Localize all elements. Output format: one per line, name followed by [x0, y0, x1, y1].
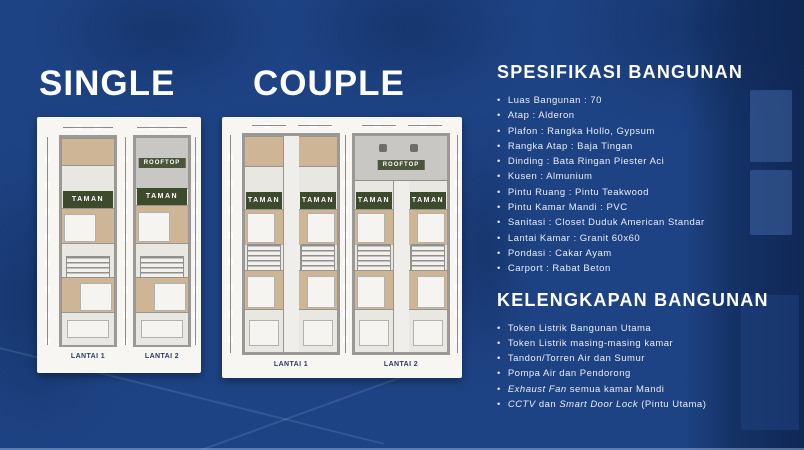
bed	[357, 213, 385, 243]
bed	[141, 320, 183, 338]
room-area	[245, 309, 283, 352]
rooftop-furniture-icon	[379, 144, 387, 152]
dimension-ticks-horizontal	[63, 125, 113, 130]
stairs-area	[357, 244, 391, 272]
stairs-area	[411, 244, 445, 272]
taman-label: TAMAN	[302, 197, 334, 204]
spec-item: Plafon : Rangka Hollo, Gypsum	[497, 124, 799, 139]
taman-label: TAMAN	[146, 193, 178, 200]
floorplan-single-lantai2: ROOFTOP TAMAN	[133, 135, 191, 347]
taman-badge: TAMAN	[137, 188, 187, 205]
taman-badge: TAMAN	[63, 191, 113, 208]
taman-badge: TAMAN	[246, 192, 282, 209]
stairs-area	[66, 256, 110, 279]
rooftop-badge: ROOFTOP	[139, 158, 186, 168]
feature-item: Pompa Air dan Pendorong	[497, 366, 799, 381]
feature-item: Exhaust Fan semua kamar Mandi	[497, 382, 799, 397]
rooftop-area: ROOFTOP	[136, 138, 188, 189]
dimension-ticks-horizontal	[362, 123, 396, 128]
stairs-area	[140, 256, 184, 279]
landing-area	[136, 243, 188, 257]
spec-item: Pondasi : Cakar Ayam	[497, 246, 799, 261]
bed	[417, 213, 445, 243]
landing-area	[62, 243, 114, 257]
bed	[303, 320, 333, 346]
dimension-ticks-horizontal	[137, 125, 187, 130]
bed	[67, 320, 109, 338]
feature-item: CCTV dan Smart Door Lock (Pintu Utama)	[497, 397, 799, 412]
flyer-canvas: SINGLE COUPLE TAMAN ROOFTOP TAMAN	[0, 0, 804, 450]
single-title: SINGLE	[39, 64, 175, 104]
bed	[154, 283, 186, 311]
bedroom-area	[299, 270, 337, 310]
feature-item: Token Listrik masing-masing kamar	[497, 336, 799, 351]
spesifikasi-heading: SPESIFIKASI BANGUNAN	[497, 62, 799, 83]
taman-label: TAMAN	[412, 197, 444, 204]
bed	[249, 320, 279, 346]
bed	[307, 213, 335, 243]
taman-badge: TAMAN	[356, 192, 392, 209]
single-lantai2-label: LANTAI 2	[133, 353, 191, 360]
dimension-ticks-vertical	[45, 137, 50, 345]
bedroom-area	[136, 277, 188, 313]
single-floorplan-card: TAMAN ROOFTOP TAMAN LANTAI 1 LANTAI 2	[37, 117, 201, 373]
bedroom-area	[62, 208, 114, 244]
spesifikasi-list: Luas Bangunan : 70 Atap : Alderon Plafon…	[497, 93, 799, 277]
couple-floorplan-card: TAMAN TAMAN TAMAN	[222, 117, 462, 378]
spec-item: Pintu Ruang : Pintu Teakwood	[497, 185, 799, 200]
room-area	[299, 309, 337, 352]
dimension-ticks-vertical	[228, 135, 233, 353]
taman-label: TAMAN	[358, 197, 390, 204]
rooftop-area: ROOFTOP	[355, 136, 447, 181]
taman-label: TAMAN	[72, 196, 104, 203]
bed	[247, 276, 275, 308]
spec-item: Lantai Kamar : Granit 60x60	[497, 231, 799, 246]
dimension-ticks-horizontal	[252, 123, 286, 128]
rooftop-badge: ROOFTOP	[378, 160, 425, 170]
bedroom-area	[136, 205, 188, 244]
bedroom-area	[245, 270, 283, 310]
bathroom-area	[299, 166, 337, 193]
floorplan-couple-lantai1: TAMAN TAMAN	[242, 133, 340, 355]
room-area	[62, 312, 114, 345]
dimension-ticks-horizontal	[298, 123, 332, 128]
room-area	[299, 136, 337, 167]
spec-item: Luas Bangunan : 70	[497, 93, 799, 108]
spec-item: Kusen : Almunium	[497, 169, 799, 184]
feature-item: Tandon/Torren Air dan Sumur	[497, 351, 799, 366]
kelengkapan-heading: KELENGKAPAN BANGUNAN	[497, 290, 799, 311]
taman-label: TAMAN	[248, 197, 280, 204]
bedroom-area	[355, 209, 393, 245]
dimension-ticks-vertical	[343, 135, 348, 353]
plan-column-left: TAMAN	[245, 136, 283, 352]
bathroom-area	[245, 166, 283, 193]
bed	[138, 212, 170, 242]
bathroom-area	[62, 165, 114, 192]
taman-badge: TAMAN	[300, 192, 336, 209]
couple-lantai1-label: LANTAI 1	[242, 361, 340, 368]
dimension-ticks-horizontal	[408, 123, 442, 128]
floorplan-couple-lantai2: TAMAN TAMAN ROOFTOP	[352, 133, 450, 355]
bed	[359, 320, 389, 346]
feature-item: Token Listrik Bangunan Utama	[497, 321, 799, 336]
stairs-area	[247, 244, 281, 272]
room-area	[409, 309, 447, 352]
bedroom-area	[409, 209, 447, 245]
bed	[80, 283, 112, 311]
bedroom-area	[299, 209, 337, 245]
bed	[413, 320, 443, 346]
bed	[417, 276, 445, 308]
bed	[357, 276, 385, 308]
dimension-ticks-vertical	[193, 137, 198, 345]
floorplan-single-lantai1: TAMAN	[59, 135, 117, 347]
couple-title: COUPLE	[253, 64, 405, 104]
room-area	[245, 136, 283, 167]
plan-column-right: TAMAN	[299, 136, 337, 352]
stairs-area	[301, 244, 335, 272]
bed	[307, 276, 335, 308]
rooftop-furniture-icon	[410, 144, 418, 152]
room-area	[355, 309, 393, 352]
room-area	[62, 138, 114, 166]
spec-item: Sanitasi : Closet Duduk American Standar	[497, 215, 799, 230]
bedroom-area	[355, 270, 393, 310]
taman-badge: TAMAN	[410, 192, 446, 209]
dimension-ticks-vertical	[123, 137, 128, 345]
spec-item: Atap : Alderon	[497, 108, 799, 123]
spec-item: Dinding : Bata Ringan Piester Aci	[497, 154, 799, 169]
bedroom-area	[409, 270, 447, 310]
room-area	[136, 312, 188, 345]
single-lantai1-label: LANTAI 1	[59, 353, 117, 360]
spec-item: Pintu Kamar Mandi : PVC	[497, 200, 799, 215]
spec-item: Rangka Atap : Baja Tingan	[497, 139, 799, 154]
bedroom-area	[62, 277, 114, 313]
dimension-ticks-vertical	[455, 135, 460, 353]
bed	[64, 214, 96, 242]
kelengkapan-list: Token Listrik Bangunan Utama Token Listr…	[497, 321, 799, 413]
bedroom-area	[245, 209, 283, 245]
couple-lantai2-label: LANTAI 2	[352, 361, 450, 368]
spec-item: Carport : Rabat Beton	[497, 261, 799, 276]
spec-panel: SPESIFIKASI BANGUNAN Luas Bangunan : 70 …	[497, 62, 799, 412]
bed	[247, 213, 275, 243]
